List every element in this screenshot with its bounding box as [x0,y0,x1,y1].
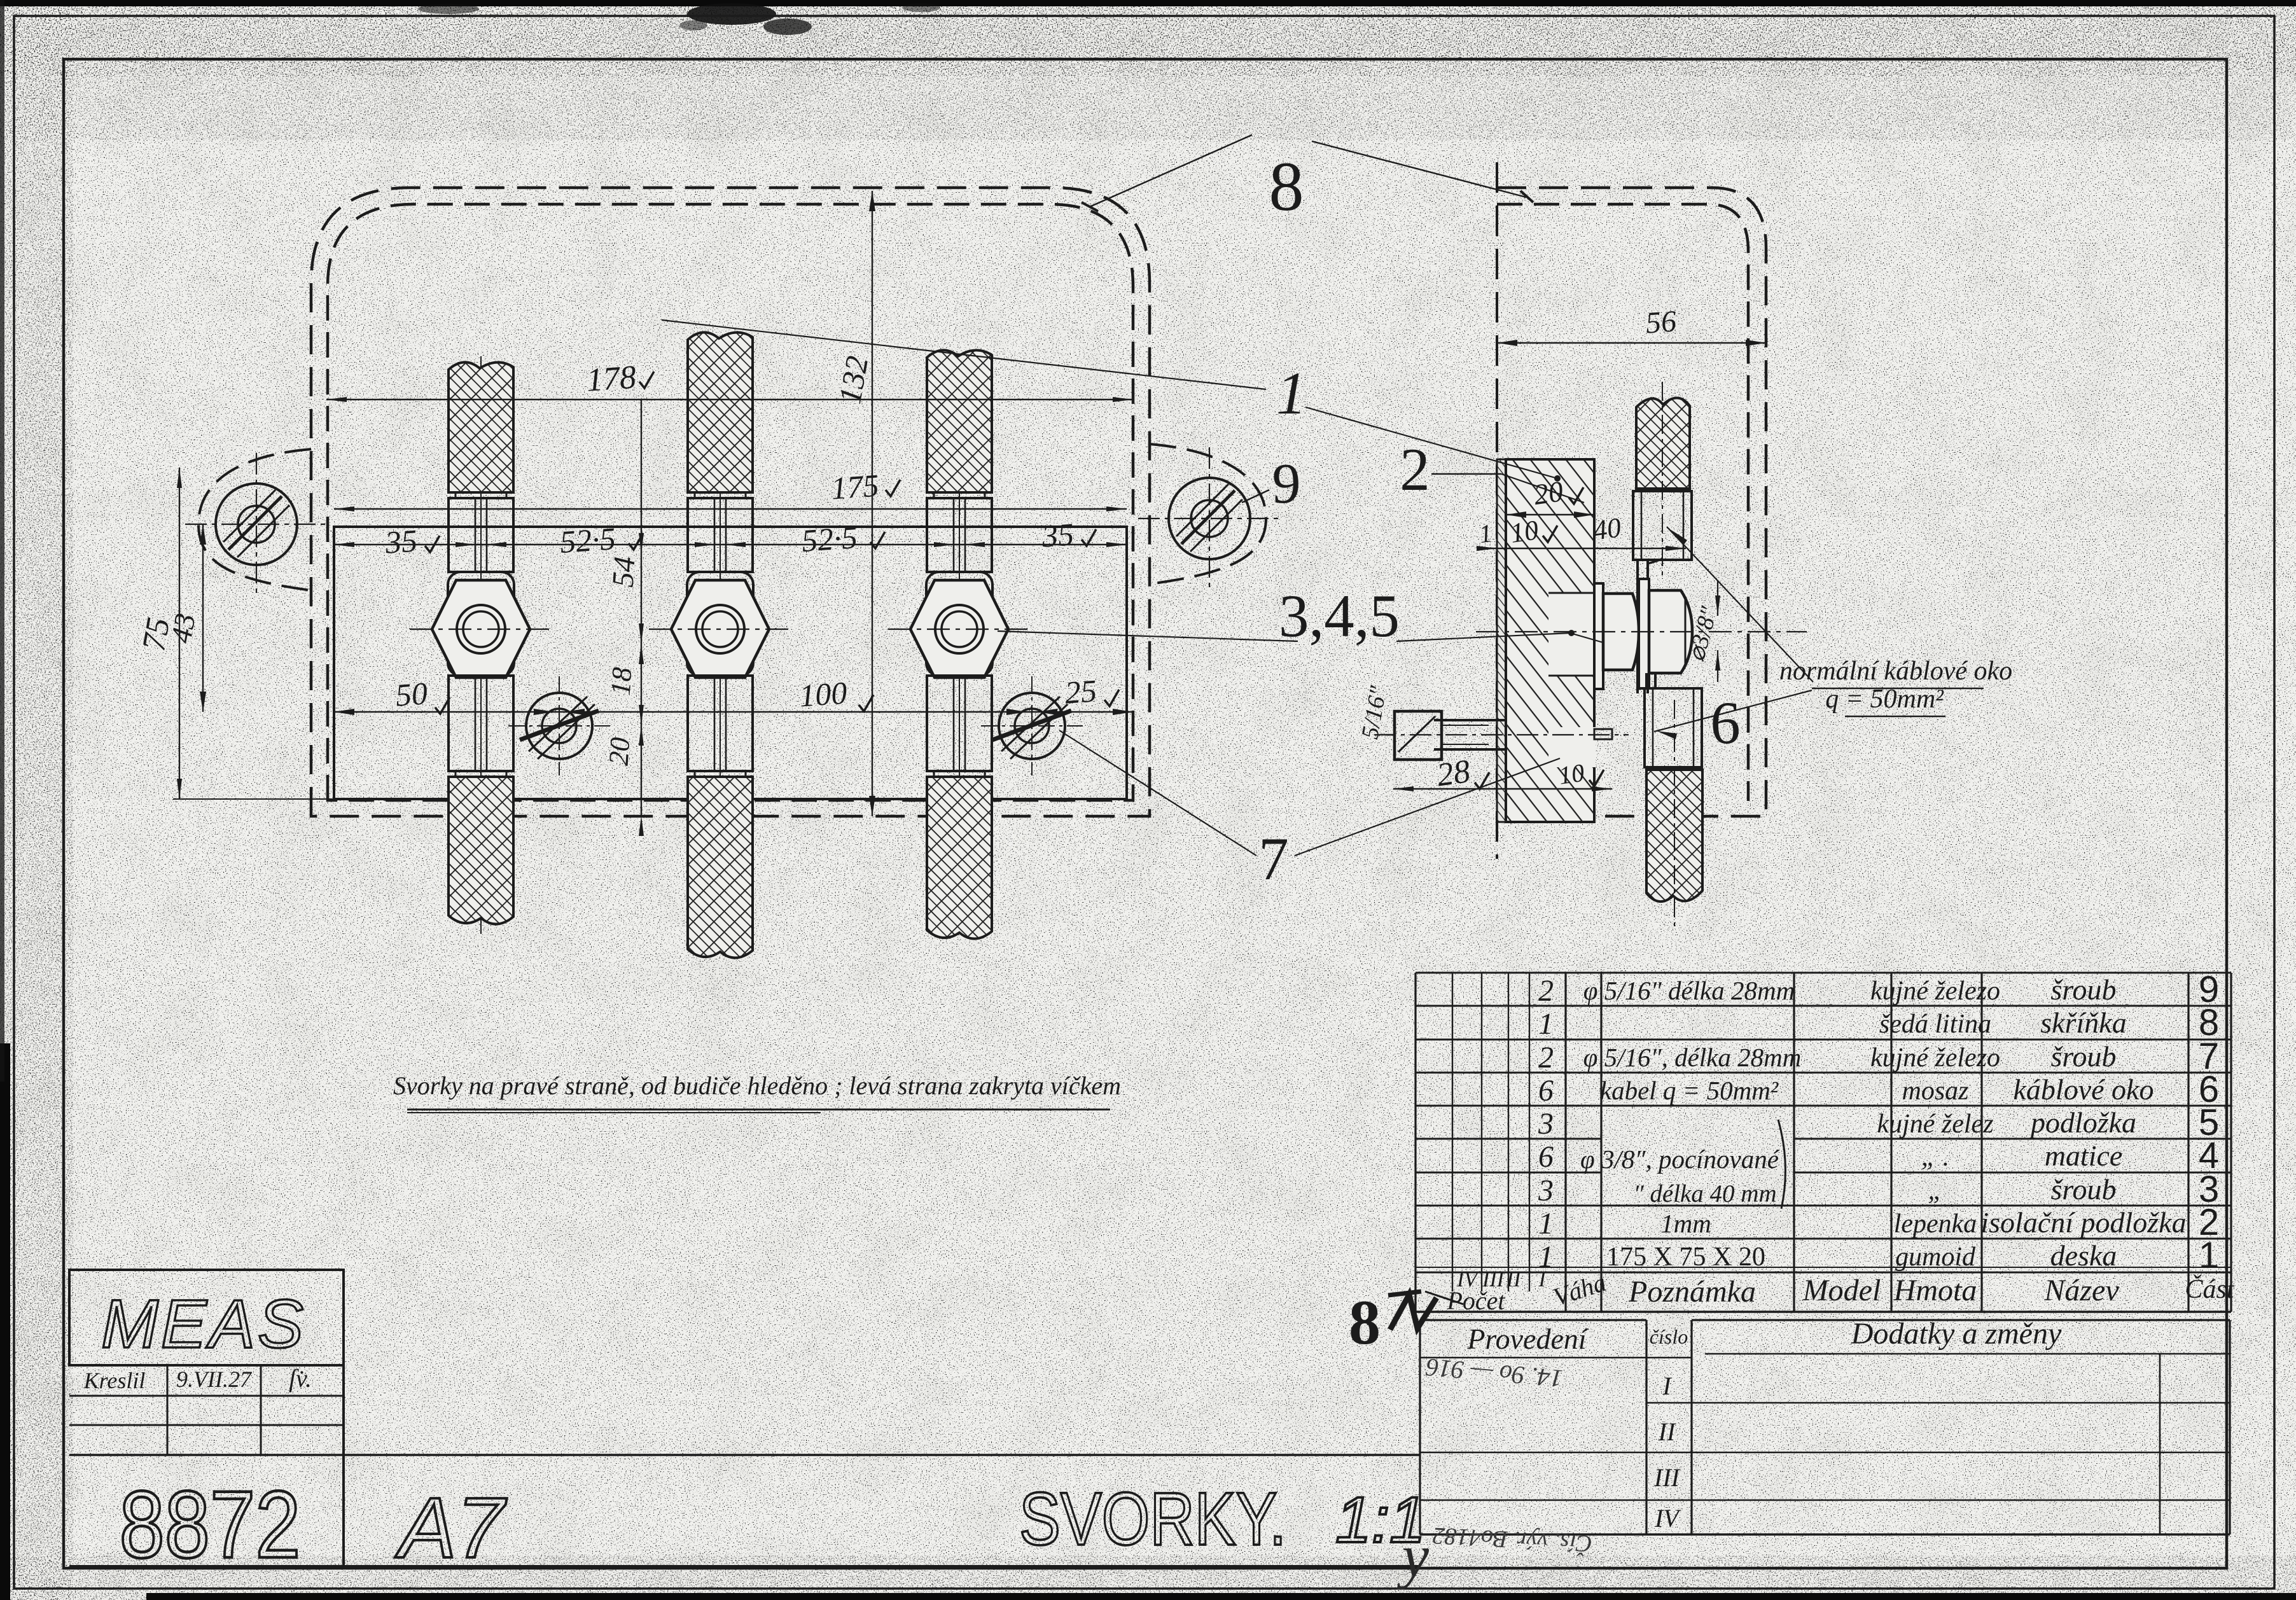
svg-text:ſv̇.: ſv̇. [289,1364,312,1393]
svg-text:Počet: Počet [1446,1286,1505,1315]
svg-text:100: 100 [798,674,848,713]
svg-text:175 X 75 X 20: 175 X 75 X 20 [1606,1242,1765,1272]
svg-text:6: 6 [1710,689,1741,756]
svg-text:SVORKY.: SVORKY. [1019,1477,1286,1561]
svg-text:y: y [1397,1522,1430,1590]
svg-text:Hmota: Hmota [1893,1274,1977,1307]
svg-text:Název: Název [2043,1274,2119,1307]
svg-text:8: 8 [1349,1287,1381,1358]
svg-text:šroub: šroub [2050,1173,2116,1206]
svg-text:q = 50mm²: q = 50mm² [1825,685,1944,714]
svg-text:Kreslil: Kreslil [83,1368,146,1393]
svg-text:″ délka 40 mm: ″ délka 40 mm [1633,1180,1776,1207]
svg-text:Model: Model [1802,1274,1881,1307]
svg-text:10: 10 [1557,758,1586,790]
svg-text:9.VII.27: 9.VII.27 [176,1367,253,1392]
svg-text:8872: 8872 [120,1471,301,1578]
svg-text:Svorky na pravé straně, od bud: Svorky na pravé straně, od budiče hleděn… [393,1071,1121,1100]
svg-text:3: 3 [1538,1174,1554,1207]
svg-text:číslo: číslo [1650,1325,1688,1348]
svg-text:Provedení: Provedení [1466,1323,1589,1355]
svg-text:35: 35 [384,522,419,560]
svg-text:gumoid: gumoid [1895,1242,1976,1272]
svg-text:Dodatky a změny: Dodatky a změny [1851,1317,2062,1351]
svg-text:Poznámka: Poznámka [1628,1275,1756,1309]
svg-text:deska: deska [2050,1239,2117,1272]
svg-text:podložka: podložka [2029,1106,2136,1139]
svg-text:178: 178 [585,359,637,398]
svg-text:I: I [1538,1268,1547,1291]
svg-text:„ .: „ . [1921,1143,1949,1172]
svg-text:III: III [1653,1463,1681,1492]
svg-text:skříňka: skříňka [2040,1006,2126,1039]
svg-text:52·5: 52·5 [800,519,858,559]
svg-text:φ 3/8″, pocínované: φ 3/8″, pocínované [1580,1144,1780,1174]
svg-text:kujné želez: kujné želez [1877,1110,1993,1139]
svg-text:A7: A7 [394,1480,507,1576]
svg-text:IV: IV [1654,1504,1681,1533]
svg-text:54: 54 [606,555,641,588]
svg-text:šroub: šroub [2050,1040,2116,1073]
svg-text:šedá litina: šedá litina [1879,1010,1991,1039]
svg-text:2: 2 [1538,974,1554,1008]
svg-text:2: 2 [1538,1041,1554,1075]
svg-text:18: 18 [605,666,638,696]
svg-text:kabel q = 50mm²: kabel q = 50mm² [1600,1076,1779,1105]
svg-text:II: II [1506,1268,1522,1291]
svg-text:50: 50 [394,675,429,713]
svg-text:56: 56 [1645,304,1678,340]
svg-text:kujné železo: kujné železo [1870,977,2000,1006]
svg-text:II: II [1658,1417,1676,1446]
svg-text:isolační podložka: isolační podložka [1980,1206,2186,1239]
svg-text:1: 1 [1538,1007,1554,1041]
svg-text:28: 28 [1435,753,1472,794]
svg-text:10: 10 [1508,514,1540,549]
svg-text:1: 1 [1538,1207,1554,1241]
svg-text:lepenka: lepenka [1894,1209,1977,1239]
svg-text:7: 7 [1258,825,1289,893]
svg-text:kujné železo: kujné železo [1870,1043,2000,1073]
svg-text:šroub: šroub [2050,973,2116,1006]
svg-text:8: 8 [1269,148,1304,225]
svg-text:20: 20 [603,736,636,766]
svg-text:1: 1 [2199,1235,2219,1276]
svg-text:3,4,5: 3,4,5 [1279,582,1400,650]
svg-text:25: 25 [1064,672,1098,710]
svg-text:matice: matice [2045,1139,2123,1172]
svg-text:3: 3 [1538,1107,1554,1141]
svg-text:Část: Část [2185,1274,2234,1304]
svg-text:2: 2 [1400,436,1430,503]
svg-text:20: 20 [1532,475,1566,511]
svg-text:43: 43 [165,611,202,645]
svg-text:káblové oko: káblové oko [2014,1073,2154,1106]
svg-text:I: I [1662,1372,1672,1400]
svg-text:9: 9 [1272,452,1301,515]
svg-text:1: 1 [1276,359,1307,427]
svg-text:mosaz: mosaz [1902,1076,1968,1106]
svg-text:52·5: 52·5 [559,520,616,560]
svg-text:6: 6 [1538,1074,1554,1108]
svg-text:6: 6 [1538,1140,1554,1174]
svg-text:φ 5/16″ délka 28mm: φ 5/16″ délka 28mm [1583,976,1795,1005]
svg-text:35: 35 [1040,516,1075,553]
svg-text:„: „ [1928,1176,1942,1206]
svg-text:1mm: 1mm [1660,1209,1711,1238]
svg-text:φ 5/16″, délka 28mm: φ 5/16″, délka 28mm [1583,1043,1802,1072]
svg-text:MEAS: MEAS [101,1285,306,1362]
svg-text:40: 40 [1591,511,1623,546]
svg-text:normální káblové oko: normální káblové oko [1779,657,2012,686]
